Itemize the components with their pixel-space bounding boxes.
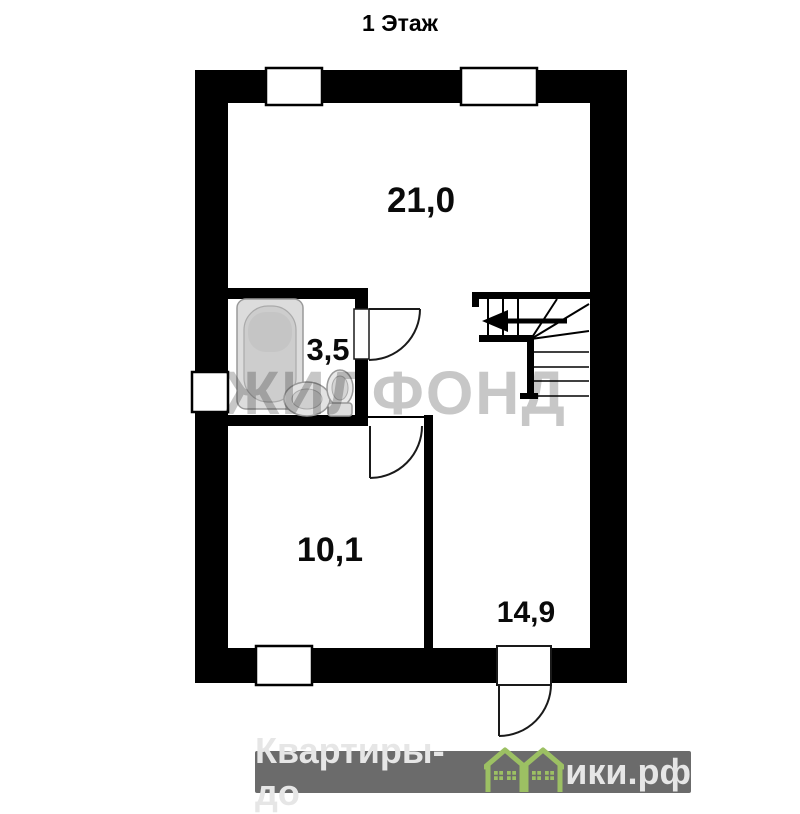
bathroom-wall-top xyxy=(228,288,368,299)
room-area-label-living: 21,0 xyxy=(387,181,455,220)
room-area-label-hall: 14,9 xyxy=(497,596,555,629)
wall-top xyxy=(195,70,627,103)
window-top-left-icon xyxy=(266,68,322,105)
stairs-mid-rail xyxy=(479,335,533,342)
stairs-direction-arrow-icon xyxy=(482,310,567,332)
agency-watermark: ЖИЛФОНД xyxy=(224,358,576,428)
stairs-rail-cap xyxy=(472,292,479,307)
stairs-top-rail xyxy=(472,292,590,299)
wall-right xyxy=(590,70,627,683)
footer-brand-band: Квартиры-до ики.рф xyxy=(255,751,691,793)
window-bottom-icon xyxy=(256,646,312,685)
window-left-icon xyxy=(192,372,228,412)
room-area-label-bedroom: 10,1 xyxy=(297,531,363,569)
green-houses-icon xyxy=(484,746,564,792)
bathroom-door-icon xyxy=(354,309,420,360)
window-top-right-icon xyxy=(461,68,537,105)
brand-text-before: Квартиры-до xyxy=(255,730,483,814)
brand-text-after: ики.рф xyxy=(565,751,691,793)
bedroom-door-icon xyxy=(370,426,422,478)
entrance-door-icon xyxy=(497,646,551,736)
partition-wall xyxy=(424,415,433,648)
